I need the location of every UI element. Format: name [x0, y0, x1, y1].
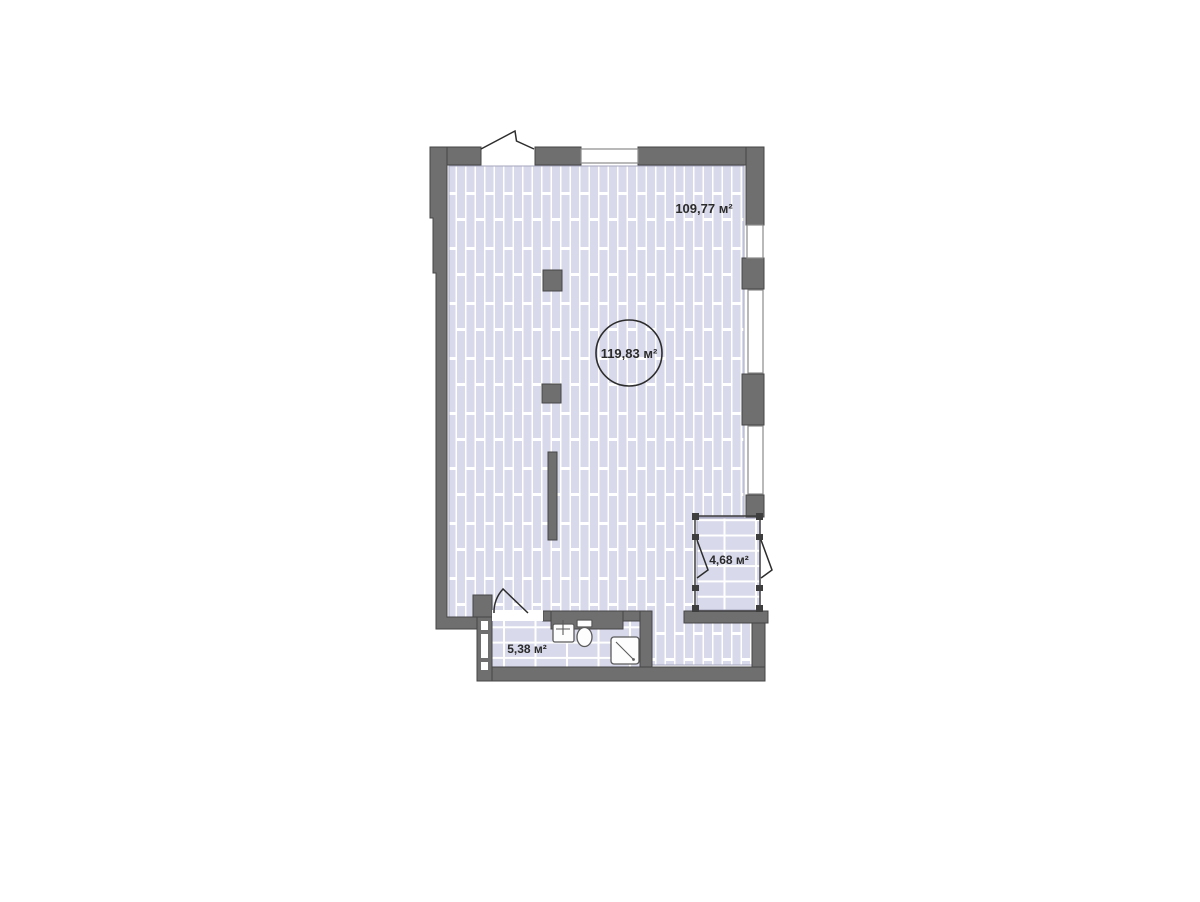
- wall-right-pillar-1: [742, 258, 764, 289]
- shower-drain-dot: [632, 658, 635, 661]
- window-right-3: [748, 426, 763, 494]
- wall-right-bottom-column: [752, 623, 765, 669]
- column-2: [542, 384, 561, 403]
- window-top: [581, 149, 638, 163]
- shaft-niche-1: [481, 621, 488, 630]
- floor-plan-drawing: 109,77 м² 119,83 м² 4,68 м² 5,38 м²: [0, 0, 1200, 902]
- partition-stub: [548, 452, 557, 540]
- bathroom-area-label: 5,38 м²: [507, 642, 547, 656]
- shaft-niche-2: [481, 634, 488, 658]
- main-area-label: 109,77 м²: [675, 201, 733, 216]
- wall-right-pillar-2: [742, 374, 764, 425]
- wall-loggia-bottom: [684, 611, 768, 623]
- bathroom-door-threshold: [492, 610, 543, 621]
- shaft-niche-3: [481, 662, 488, 670]
- toilet-icon: [577, 628, 592, 647]
- wall-top-right: [638, 147, 764, 165]
- total-area-label: 119,83 м²: [601, 346, 658, 361]
- wall-bottom: [477, 667, 765, 681]
- wall-bathroom-right: [640, 611, 652, 667]
- glazing-post: [756, 513, 763, 520]
- loggia-area-label: 4,68 м²: [709, 553, 749, 567]
- window-right-1: [747, 225, 763, 258]
- wall-top-mid: [535, 147, 581, 165]
- glazing-post: [756, 534, 763, 540]
- wall-right-upper: [746, 147, 764, 225]
- glazing-post: [692, 513, 699, 520]
- glazing-post: [692, 585, 699, 591]
- glazing-post: [692, 534, 699, 540]
- glazing-post: [756, 585, 763, 591]
- window-right-2: [748, 290, 763, 373]
- glazing-post: [692, 605, 699, 612]
- toilet-tank-icon: [577, 620, 592, 627]
- floor-plan-canvas: 109,77 м² 119,83 м² 4,68 м² 5,38 м²: [0, 0, 1200, 902]
- glazing-post: [756, 605, 763, 612]
- column-1: [543, 270, 562, 291]
- column-bathroom-corner: [473, 595, 492, 617]
